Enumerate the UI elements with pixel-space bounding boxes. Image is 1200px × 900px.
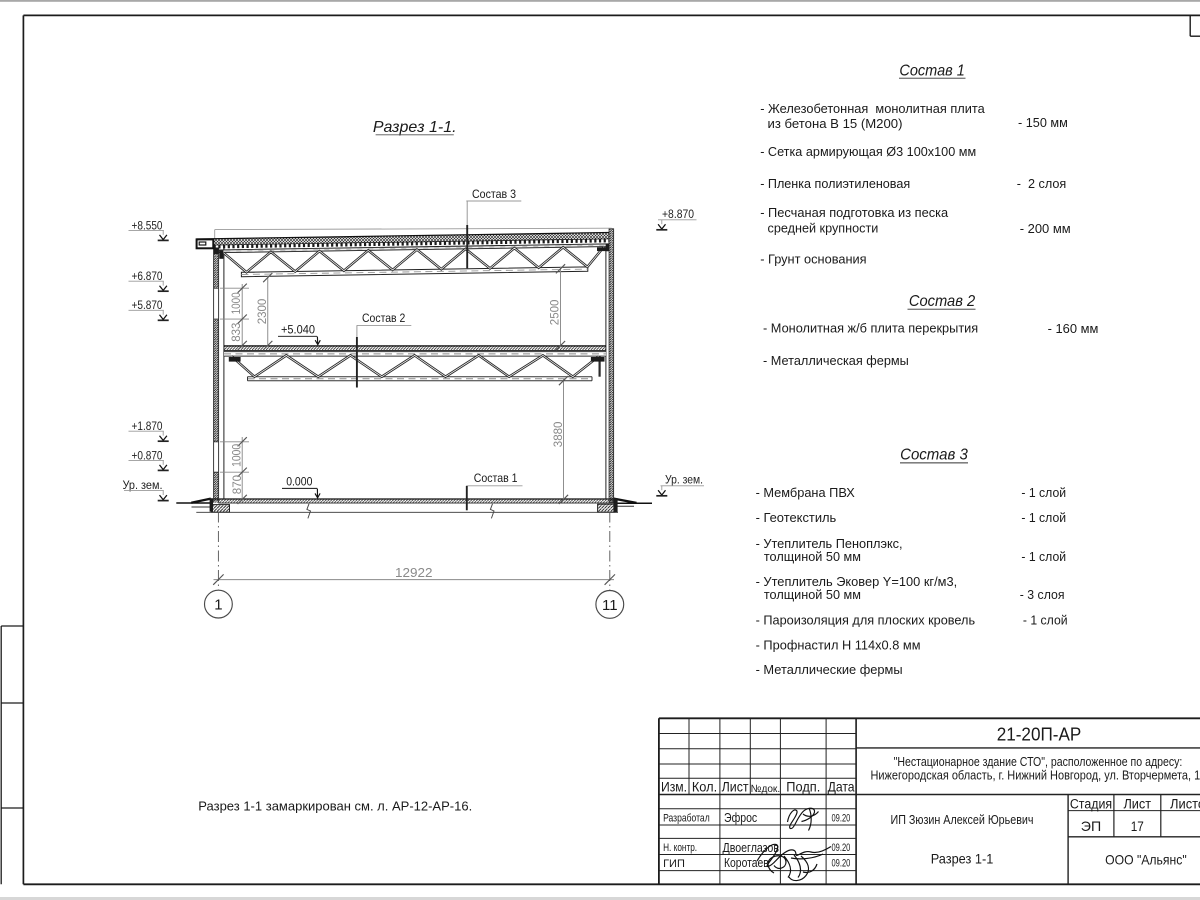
svg-text:- Мембрана ПВХ: - Мембрана ПВХ (756, 485, 856, 500)
svg-text:Лист: Лист (1123, 797, 1151, 812)
svg-text:+5.040: +5.040 (281, 323, 315, 337)
svg-text:из бетона В 15 (М200): из бетона В 15 (М200) (768, 116, 903, 131)
svg-text:Коротаев: Коротаев (724, 855, 769, 870)
svg-text:Разрез 1-1.: Разрез 1-1. (373, 119, 457, 136)
svg-text:Дата: Дата (828, 778, 855, 794)
svg-text:1000: 1000 (231, 292, 243, 314)
svg-text:0.000: 0.000 (286, 474, 312, 488)
svg-text:- Железобетонная монолитная п: - Железобетонная монолитная плита (760, 101, 985, 116)
svg-text:3880: 3880 (553, 422, 565, 448)
svg-text:Двоеглазов: Двоеглазов (723, 840, 780, 855)
svg-text:12922: 12922 (395, 566, 433, 580)
svg-text:- 2 слоя: - 2 слоя (1017, 176, 1067, 191)
svg-text:1: 1 (214, 597, 222, 614)
svg-text:- Профнастил Н 114х0.8 мм: - Профнастил Н 114х0.8 мм (756, 637, 921, 652)
svg-text:Н. контр.: Н. контр. (663, 842, 697, 854)
svg-text:Разрез 1-1: Разрез 1-1 (931, 850, 994, 866)
svg-text:Лист: Лист (722, 778, 750, 794)
svg-text:09.20: 09.20 (832, 842, 851, 854)
svg-text:- 1 слой: - 1 слой (1021, 549, 1066, 564)
svg-text:2500: 2500 (550, 300, 562, 326)
svg-text:ООО "Альянс": ООО "Альянс" (1105, 852, 1187, 868)
svg-text:- Металлические фермы: - Металлические фермы (756, 662, 903, 677)
svg-text:09.20: 09.20 (832, 858, 851, 870)
svg-text:ЭП: ЭП (1081, 818, 1101, 834)
svg-text:Состав 3: Состав 3 (900, 447, 968, 464)
svg-text:Состав 2: Состав 2 (909, 293, 975, 310)
svg-text:11: 11 (602, 597, 618, 614)
svg-text:- Грунт основания: - Грунт основания (760, 251, 866, 266)
svg-text:Разработал: Разработал (663, 813, 710, 825)
svg-text:- Песчаная подготовка из песка: - Песчаная подготовка из песка (760, 205, 949, 220)
svg-text:- Монолитная ж/б плита перекры: - Монолитная ж/б плита перекрытия (763, 321, 978, 336)
svg-text:Состав 1: Состав 1 (899, 62, 965, 79)
svg-text:Разрез 1-1 замаркирован см. л.: Разрез 1-1 замаркирован см. л. АР-12-АР-… (198, 799, 472, 814)
svg-text:Состав 1: Состав 1 (474, 471, 518, 485)
svg-text:средней крупности: средней крупности (768, 221, 879, 236)
svg-text:- Сетка армирующая Ø3 100х100: - Сетка армирующая Ø3 100х100 мм (760, 144, 976, 159)
svg-text:870: 870 (232, 475, 244, 494)
svg-text:- 1 слой: - 1 слой (1021, 485, 1066, 500)
svg-text:толщиной 50 мм: толщиной 50 мм (764, 587, 861, 602)
svg-text:2300: 2300 (257, 299, 269, 325)
svg-text:Изм.: Изм. (661, 778, 687, 794)
svg-text:Эфрос: Эфрос (724, 810, 758, 825)
svg-text:Состав 3: Состав 3 (472, 187, 516, 201)
svg-text:"Нестационарное здание СТО", р: "Нестационарное здание СТО", расположенн… (894, 755, 1183, 769)
svg-text:- 3 слоя: - 3 слоя (1020, 587, 1065, 602)
svg-text:1000: 1000 (231, 444, 243, 467)
svg-text:21-20П-АР: 21-20П-АР (997, 724, 1082, 745)
svg-text:+8.870: +8.870 (662, 209, 694, 221)
svg-text:ИП Зюзин Алексей Юрьевич: ИП Зюзин Алексей Юрьевич (891, 813, 1034, 827)
svg-text:Стадия: Стадия (1070, 797, 1112, 812)
svg-text:- Пароизоляция для плоских кро: - Пароизоляция для плоских кровель (756, 613, 976, 628)
svg-text:- Пленка полиэтиленовая: - Пленка полиэтиленовая (760, 176, 910, 191)
svg-text:ГИП: ГИП (663, 858, 685, 870)
svg-text:№док.: №док. (751, 783, 781, 795)
svg-text:Подп.: Подп. (786, 778, 820, 794)
svg-text:- 150 мм: - 150 мм (1018, 115, 1068, 130)
svg-text:- 1 слой: - 1 слой (1023, 613, 1068, 628)
svg-text:833: 833 (231, 323, 243, 342)
svg-text:- 200 мм: - 200 мм (1020, 221, 1071, 236)
svg-text:09.20: 09.20 (832, 812, 851, 824)
svg-text:Кол.: Кол. (692, 778, 717, 794)
svg-text:Листов: Листов (1170, 797, 1200, 812)
svg-text:толщиной 50 мм: толщиной 50 мм (764, 549, 861, 564)
svg-text:Нижегородская область, г. Нижн: Нижегородская область, г. Нижний Новгоро… (871, 768, 1200, 782)
svg-text:- Геотекстиль: - Геотекстиль (756, 510, 837, 525)
svg-text:- 160 мм: - 160 мм (1048, 321, 1099, 336)
svg-text:- 1 слой: - 1 слой (1021, 510, 1066, 525)
svg-text:- Металлическая фермы: - Металлическая фермы (763, 353, 909, 368)
svg-text:Ур. зем.: Ур. зем. (665, 475, 703, 487)
svg-text:17: 17 (1131, 818, 1144, 834)
svg-text:Состав 2: Состав 2 (362, 311, 406, 325)
